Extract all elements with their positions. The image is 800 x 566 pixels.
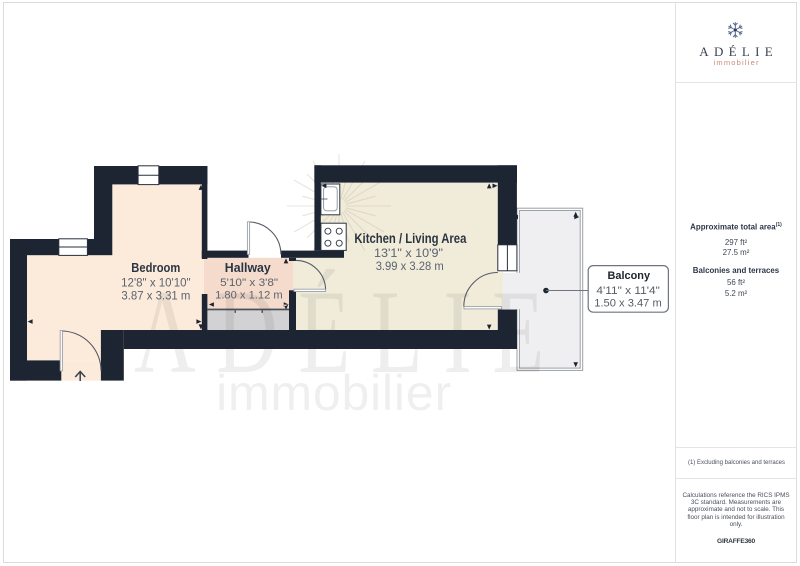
- svg-text:Hallway: Hallway: [225, 261, 271, 275]
- svg-text:Kitchen / Living Area: Kitchen / Living Area: [354, 231, 466, 246]
- svg-text:Bedroom: Bedroom: [131, 260, 180, 275]
- svg-text:5'10" x 3'8": 5'10" x 3'8": [220, 277, 278, 289]
- svg-text:3.87 x 3.31 m: 3.87 x 3.31 m: [121, 290, 190, 302]
- svg-text:Balcony: Balcony: [608, 270, 651, 282]
- svg-text:3.99 x 3.28 m: 3.99 x 3.28 m: [376, 261, 444, 273]
- svg-text:1.80 x 1.12 m: 1.80 x 1.12 m: [215, 290, 283, 302]
- svg-text:1.50 x 3.47 m: 1.50 x 3.47 m: [594, 298, 662, 310]
- svg-text:immobilier: immobilier: [216, 365, 452, 421]
- svg-text:12'8" x 10'10": 12'8" x 10'10": [121, 277, 191, 289]
- svg-text:4'11" x 11'4": 4'11" x 11'4": [596, 285, 660, 297]
- svg-text:13'1" x 10'9": 13'1" x 10'9": [374, 248, 443, 260]
